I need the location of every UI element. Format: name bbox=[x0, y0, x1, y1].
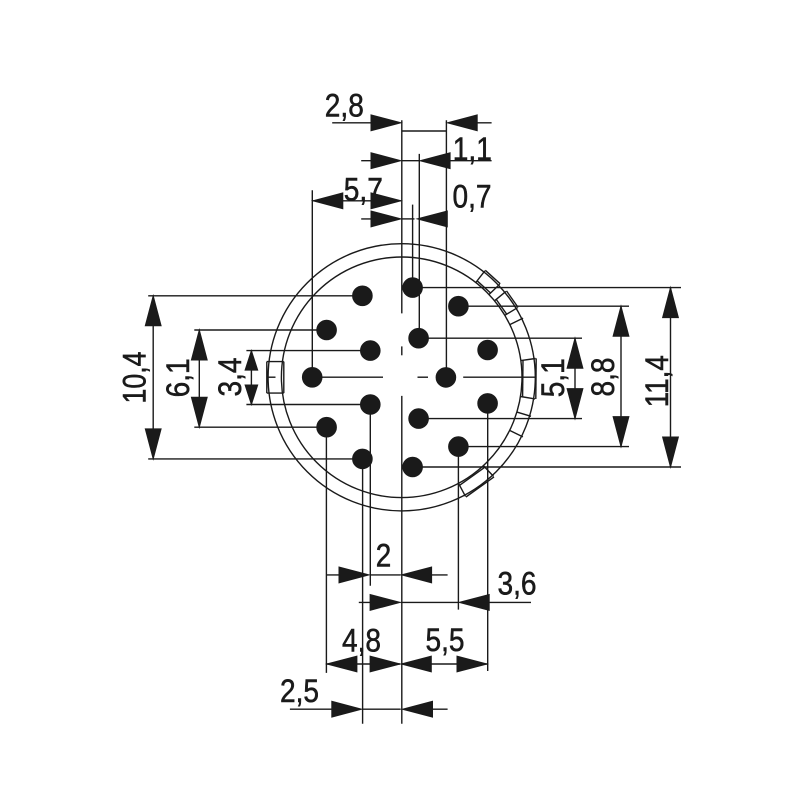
svg-text:2,8: 2,8 bbox=[325, 88, 364, 124]
svg-text:2: 2 bbox=[376, 537, 392, 573]
svg-text:4,8: 4,8 bbox=[342, 623, 381, 659]
svg-text:2,5: 2,5 bbox=[280, 673, 319, 709]
svg-text:5,1: 5,1 bbox=[535, 358, 571, 397]
svg-text:3,6: 3,6 bbox=[498, 566, 537, 602]
svg-text:10,4: 10,4 bbox=[117, 352, 153, 404]
svg-text:8,8: 8,8 bbox=[585, 358, 621, 397]
svg-text:11,4: 11,4 bbox=[639, 355, 675, 407]
svg-text:5,7: 5,7 bbox=[344, 172, 383, 208]
svg-text:3,4: 3,4 bbox=[212, 358, 248, 397]
svg-text:6,1: 6,1 bbox=[160, 358, 196, 397]
svg-text:1,1: 1,1 bbox=[453, 131, 492, 167]
svg-text:0,7: 0,7 bbox=[453, 179, 492, 215]
svg-text:5,5: 5,5 bbox=[426, 622, 465, 658]
